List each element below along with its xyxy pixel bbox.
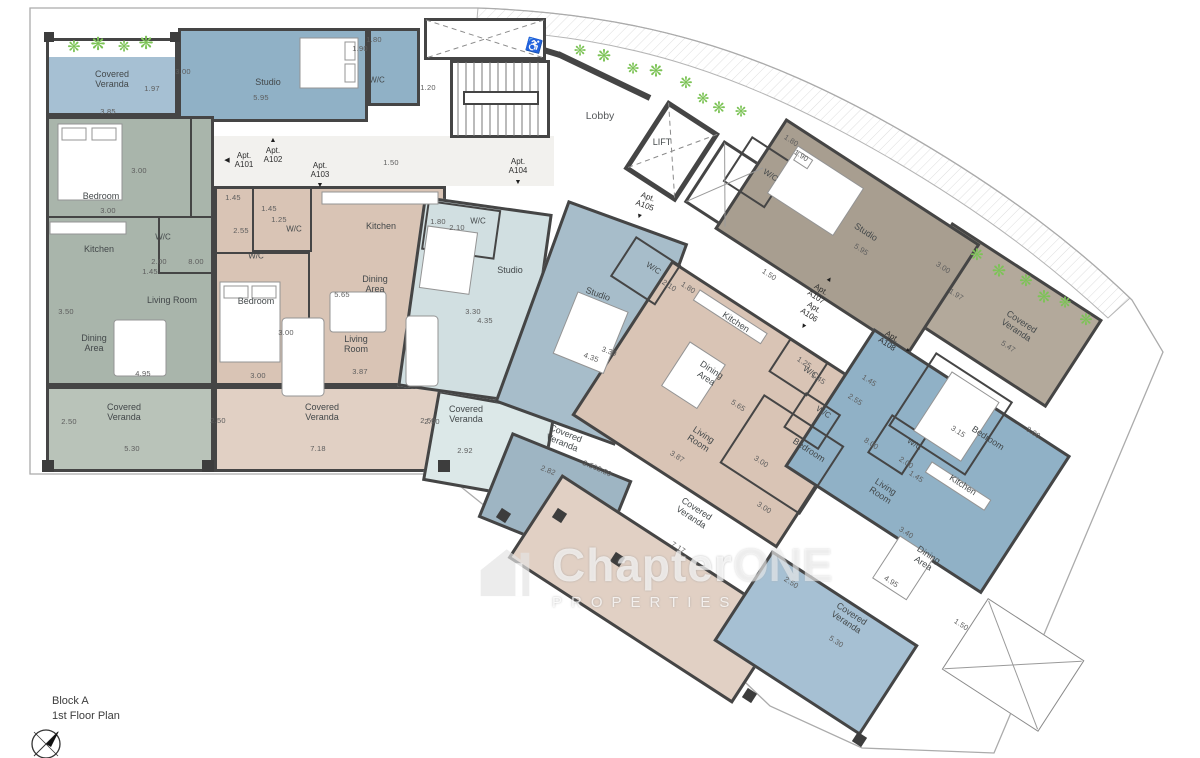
label-dim: 2.00 [151, 258, 166, 266]
label-dim: 1.45 [142, 268, 157, 276]
label-room: Covered Veranda [449, 404, 483, 424]
label-dim: 1.80 [366, 36, 381, 44]
label-dim: 3.85 [100, 108, 115, 116]
label-dim: 4.95 [135, 370, 150, 378]
label-room: Living Room [147, 295, 197, 305]
label-dim: 7.17 [669, 540, 686, 555]
label-dim: 1.45 [907, 469, 924, 484]
label-room: Living Room [344, 334, 368, 354]
label-dim: 1.45 [860, 373, 877, 388]
label-dim: 5.30 [124, 445, 139, 453]
label-dim: 7.18 [310, 445, 325, 453]
label-dim: 2.55 [233, 227, 248, 235]
label-dim: 3.87 [352, 368, 367, 376]
label-room: Living Room [867, 476, 898, 506]
label-dim: 8.00 [862, 436, 879, 451]
label-apt: Apt. A102 [264, 147, 283, 165]
label-dim: 3.00 [131, 167, 146, 175]
label-dim: 3.00 [934, 260, 951, 275]
label-icon: ♿ [524, 37, 543, 55]
label-room: Kitchen [948, 473, 979, 498]
label-dim: 2.92 [457, 447, 472, 455]
label-dim: 1.90 [792, 148, 809, 163]
label-dim: 1.25 [271, 216, 286, 224]
label-arrow: ▼ [515, 179, 522, 187]
label-apt: Apt. A101 [235, 152, 254, 170]
label-room: Bedroom [83, 191, 120, 201]
label-room: Studio [853, 221, 880, 243]
label-room: Dining Area [362, 274, 388, 294]
label-dim: 8.00 [188, 258, 203, 266]
label-dim: 4.35 [477, 317, 492, 325]
label-room: Covered Veranda [107, 402, 141, 422]
label-room-sm: W/C [644, 261, 662, 277]
label-dim: 5.65 [334, 291, 349, 299]
label-dim: 3.00 [278, 329, 293, 337]
label-dim: 5.30 [827, 634, 844, 649]
label-dim: 5.47 [999, 339, 1016, 354]
label-dim: 2.50 [595, 465, 613, 479]
label-room: LIFT [653, 137, 672, 147]
label-room: Kitchen [366, 221, 396, 231]
label-room: Living Room [685, 424, 716, 454]
label-room-sm: W/C [155, 234, 171, 243]
label-room-sm: W/C [470, 218, 486, 227]
label-room: Covered Veranda [305, 402, 339, 422]
label-arrow: ▼ [317, 182, 324, 190]
label-dim: 5.95 [852, 242, 869, 257]
label-dim: 3.00 [752, 454, 769, 469]
label-arrow: ▼ [798, 322, 808, 332]
label-room-sm: W/C [761, 168, 779, 184]
label-dim: 2.82 [539, 464, 556, 478]
label-room-lg: Lobby [586, 111, 615, 123]
label-room: Studio [255, 77, 281, 87]
label-dim: 1.45 [809, 371, 826, 386]
floor-plan-canvas: ❋❋❋❋❋❋❋❋❋❋❋❋❋❋❋❋❋❋ LobbyLIFT1.20♿Apt. A1… [0, 0, 1200, 758]
label-dim: 1.50 [760, 267, 777, 282]
label-room: Bedroom [238, 296, 275, 306]
label-dim: 3.00 [755, 500, 772, 515]
label-room: Covered Veranda [674, 495, 714, 530]
label-dim: 2.50 [424, 418, 439, 426]
label-dim: 1.20 [420, 84, 435, 92]
label-dim: 5.65 [729, 398, 746, 413]
label-room: Covered Veranda [544, 422, 583, 453]
label-apt: Apt. A103 [311, 162, 330, 180]
label-dim: 4.35 [582, 351, 599, 364]
label-room: Kitchen [721, 310, 752, 335]
label-dim: 3.00 [100, 207, 115, 215]
label-arrow: ▼ [634, 212, 643, 222]
label-arrow: ▲ [270, 137, 277, 145]
label-dim: 3.00 [250, 372, 265, 380]
label-apt: Apt. A104 [509, 158, 528, 176]
label-room: Bedroom [970, 424, 1006, 452]
label-room: Studio [584, 285, 611, 303]
label-dim: 1.50 [952, 617, 969, 632]
label-dim: 5.95 [253, 94, 268, 102]
label-dim: 3.40 [897, 525, 914, 540]
label-dim: 1.97 [947, 287, 964, 302]
label-dim: 3.87 [668, 449, 685, 464]
label-dim: 2.50 [61, 418, 76, 426]
label-arrow: ◀ [224, 157, 229, 165]
label-dim: 1.45 [261, 205, 276, 213]
label-arrow: ▲ [824, 275, 834, 285]
labels-layer: LobbyLIFT1.20♿Apt. A101◀Apt. A102▲Apt. A… [0, 0, 1200, 758]
label-room: Kitchen [84, 244, 114, 254]
label-dim: 1.80 [430, 218, 445, 226]
label-dim: 1.45 [225, 194, 240, 202]
label-dim: 3.50 [58, 308, 73, 316]
label-dim: 2.50 [782, 575, 799, 590]
label-room-sm: W/C [248, 253, 264, 262]
label-dim: 3.00 [1024, 425, 1041, 440]
label-room: Bedroom [791, 436, 827, 464]
label-arrow: ▸ [904, 347, 911, 355]
label-room-sm: W/C [286, 226, 302, 235]
label-dim: 3.30 [600, 345, 617, 358]
label-dim: 3.00 [175, 68, 190, 76]
label-dim: 1.80 [679, 280, 696, 295]
label-dim: 3.15 [949, 424, 966, 439]
label-room: Dining Area [693, 359, 725, 390]
label-apt: Apt. A108 [876, 328, 901, 353]
label-room: Dining Area [81, 333, 107, 353]
label-room: Covered Veranda [95, 69, 129, 89]
label-dim: 2.55 [846, 392, 863, 407]
label-room: Studio [497, 265, 523, 275]
label-dim: 1.50 [383, 159, 398, 167]
label-room: Covered Veranda [829, 600, 869, 635]
label-dim: 4.95 [882, 574, 899, 589]
label-dim: 2.10 [660, 278, 677, 293]
label-room-sm: W/C [369, 77, 385, 86]
label-apt: Apt. A105 [634, 190, 658, 213]
label-dim: 2.50 [210, 417, 225, 425]
label-dim: 1.97 [144, 85, 159, 93]
label-room-sm: W/C [814, 405, 832, 421]
label-dim: 1.90 [352, 45, 367, 53]
label-room: Dining Area [910, 544, 942, 575]
label-room-sm: W/C [905, 437, 923, 453]
label-dim: 2.10 [449, 224, 464, 232]
